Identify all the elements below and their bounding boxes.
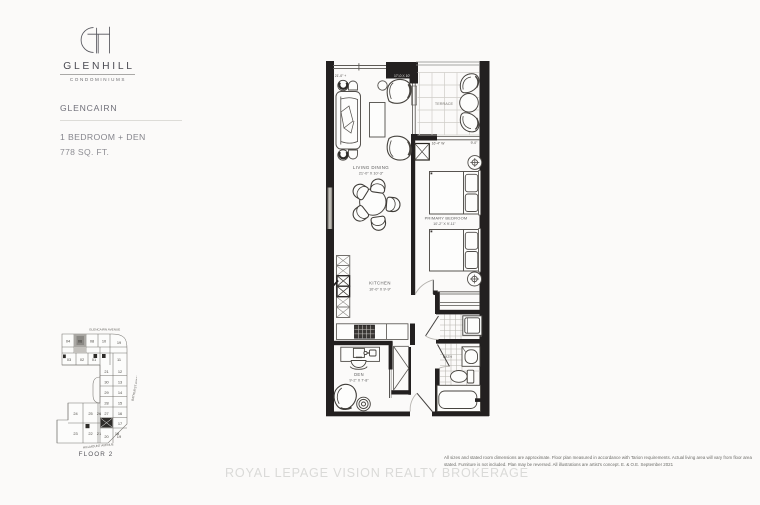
svg-text:25: 25 [88, 411, 92, 416]
svg-text:17: 17 [118, 421, 122, 426]
svg-text:10'-0" X 9'-9": 10'-0" X 9'-9" [369, 288, 392, 292]
svg-text:13: 13 [118, 380, 122, 385]
svg-text:12: 12 [118, 369, 122, 374]
svg-text:9'-2" X 7'-8": 9'-2" X 7'-8" [349, 379, 369, 383]
svg-text:22: 22 [88, 431, 92, 436]
svg-text:F.C.U.: F.C.U. [395, 75, 405, 79]
svg-text:28: 28 [104, 401, 108, 406]
svg-text:01: 01 [92, 357, 96, 362]
svg-text:19: 19 [117, 340, 121, 345]
svg-text:11: 11 [117, 357, 121, 362]
svg-text:21: 21 [104, 369, 108, 374]
svg-text:21'-0" X 10'-3": 21'-0" X 10'-3" [359, 170, 384, 175]
svg-text:16'-4" W: 16'-4" W [432, 142, 446, 146]
svg-text:10'-2" X 9'-11": 10'-2" X 9'-11" [433, 222, 456, 226]
svg-text:HILLMOUNT AVENUE: HILLMOUNT AVENUE [83, 442, 114, 449]
svg-text:23: 23 [73, 431, 77, 436]
svg-text:15: 15 [118, 401, 122, 406]
svg-text:21: 21 [97, 431, 102, 436]
svg-text:16: 16 [118, 411, 122, 416]
svg-text:03: 03 [67, 357, 71, 362]
svg-text:PRIMARY BEDROOM: PRIMARY BEDROOM [425, 216, 468, 221]
svg-text:GLENCAIRN AVENUE: GLENCAIRN AVENUE [89, 328, 120, 332]
svg-text:19: 19 [117, 434, 122, 439]
svg-text:BATHURST AVENUE: BATHURST AVENUE [131, 371, 137, 401]
svg-text:9'-0": 9'-0" [471, 141, 479, 145]
svg-text:06: 06 [78, 339, 82, 344]
svg-text:DEN: DEN [354, 372, 364, 377]
svg-text:LIVING DINING: LIVING DINING [353, 165, 389, 170]
svg-text:26: 26 [97, 411, 102, 416]
svg-text:29: 29 [104, 390, 108, 395]
svg-text:KITCHEN: KITCHEN [369, 281, 391, 286]
svg-text:08: 08 [90, 339, 94, 344]
svg-text:21'-0" +: 21'-0" + [335, 74, 347, 78]
svg-text:02: 02 [80, 357, 84, 362]
svg-text:27: 27 [104, 411, 108, 416]
svg-text:TERRACE: TERRACE [435, 102, 454, 106]
